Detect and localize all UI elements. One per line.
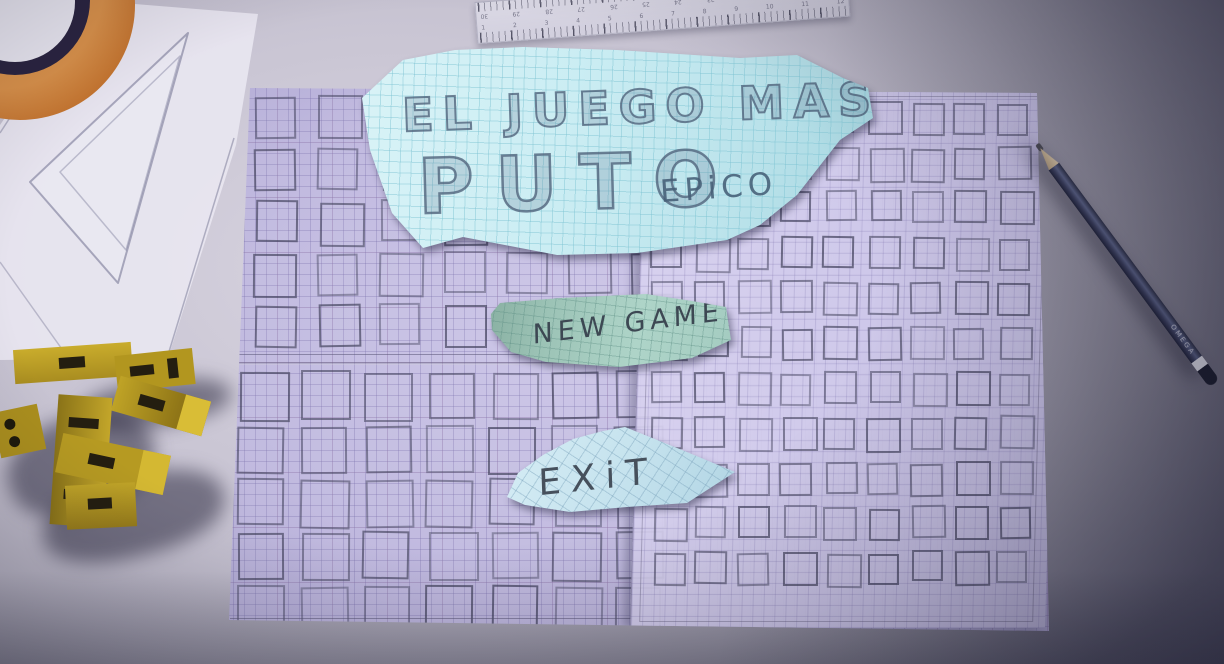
- ruler-number: 1: [481, 24, 485, 31]
- hand-drawn-square: [870, 371, 901, 403]
- hand-drawn-square: [912, 190, 944, 222]
- hand-drawn-square: [909, 325, 944, 359]
- hand-drawn-square: [824, 370, 858, 403]
- hand-drawn-square: [910, 148, 945, 182]
- hand-drawn-square: [783, 417, 818, 451]
- toy-slot: [88, 497, 113, 509]
- new-game-label: NEW GAME: [532, 296, 723, 351]
- hand-drawn-square: [956, 238, 990, 272]
- hand-drawn-square: [823, 418, 855, 451]
- hand-drawn-square: [954, 148, 986, 180]
- toy-slot: [88, 453, 116, 469]
- hand-drawn-square: [910, 282, 941, 314]
- ruler-number: 12: [837, 0, 845, 6]
- hand-drawn-square: [738, 506, 770, 538]
- hand-drawn-square: [866, 462, 898, 494]
- hand-drawn-square: [741, 326, 772, 358]
- title-tagline: EPiCO: [659, 166, 778, 210]
- ruler-number: 25: [642, 0, 650, 8]
- hand-drawn-square: [955, 551, 991, 586]
- hand-drawn-square: [998, 374, 1030, 406]
- ruler-number: 28: [545, 7, 553, 15]
- hand-drawn-square: [782, 329, 813, 361]
- hand-drawn-square: [826, 553, 861, 587]
- exit-label: EXiT: [538, 451, 658, 505]
- exit-button[interactable]: EXiT: [502, 423, 740, 525]
- hand-drawn-square: [654, 553, 687, 586]
- hand-drawn-square: [997, 103, 1028, 135]
- hand-drawn-square: [869, 509, 900, 541]
- hand-drawn-square: [868, 327, 902, 361]
- title-line1: EL JUEGO MAS: [401, 72, 881, 143]
- exit-card-wrap: EXiT: [502, 423, 740, 525]
- hand-drawn-square: [954, 190, 988, 223]
- hand-drawn-square: [912, 550, 943, 581]
- hand-drawn-square: [910, 464, 943, 497]
- hand-drawn-square: [955, 461, 990, 496]
- ruler-number: 26: [609, 3, 617, 11]
- hand-drawn-square: [868, 282, 900, 314]
- ruler-number: 7: [671, 10, 675, 17]
- hand-drawn-square: [997, 282, 1031, 316]
- hand-drawn-square: [911, 417, 943, 449]
- toy-end-face: [176, 394, 211, 436]
- hand-drawn-square: [739, 418, 773, 452]
- ruler-number: 3: [544, 20, 548, 27]
- toy-slot: [130, 364, 155, 376]
- hand-drawn-square: [822, 282, 857, 317]
- toy-slot: [167, 358, 179, 379]
- hand-drawn-square: [694, 551, 727, 584]
- ruler-number: 10: [766, 3, 774, 11]
- hand-drawn-square: [737, 462, 770, 495]
- title-card-wrap: EL JUEGO MAS PUTO EPiCO: [360, 40, 880, 260]
- ruler-number: 11: [801, 1, 809, 9]
- title-card: EL JUEGO MAS PUTO EPiCO: [360, 40, 880, 260]
- hand-drawn-square: [999, 506, 1030, 538]
- wooden-puzzle-toy: [0, 336, 226, 561]
- ruler-number: 22: [739, 0, 747, 1]
- ruler-number: 4: [576, 17, 580, 24]
- hand-drawn-square: [999, 327, 1032, 360]
- hand-drawn-square: [826, 462, 858, 494]
- hand-drawn-square: [955, 505, 989, 539]
- hand-drawn-square: [780, 374, 811, 406]
- hand-drawn-square: [913, 237, 945, 270]
- hand-drawn-square: [954, 416, 987, 449]
- toy-slot: [59, 356, 86, 369]
- toy-slot: [68, 417, 99, 429]
- ruler-number: 5: [608, 15, 612, 22]
- hand-drawn-square: [823, 507, 857, 541]
- hand-drawn-square: [953, 327, 984, 359]
- ruler-number: 29: [513, 10, 521, 18]
- toy-hole: [8, 435, 21, 448]
- hand-drawn-square: [866, 418, 901, 453]
- toy-block: [65, 482, 137, 530]
- hand-drawn-square: [780, 280, 814, 314]
- hand-drawn-square: [694, 372, 725, 404]
- ruler-number: 27: [577, 5, 585, 13]
- hand-drawn-square: [913, 373, 948, 407]
- hand-drawn-square: [736, 553, 769, 586]
- hand-drawn-square: [913, 103, 946, 136]
- ruler-number: 23: [706, 0, 714, 3]
- ruler-number: 30: [480, 12, 488, 20]
- hand-drawn-square: [783, 552, 818, 586]
- hand-drawn-square: [999, 239, 1030, 271]
- hand-drawn-square: [999, 415, 1034, 450]
- ruler-number: 8: [702, 8, 706, 15]
- hand-drawn-square: [1000, 191, 1035, 226]
- hand-drawn-square: [998, 146, 1032, 180]
- toy-block: [0, 404, 46, 459]
- ruler-number: 2: [513, 22, 517, 29]
- ruler-number: 9: [734, 6, 738, 13]
- hand-drawn-square: [911, 505, 945, 539]
- new-game-card-wrap: NEW GAME: [486, 291, 738, 371]
- hand-drawn-square: [779, 463, 812, 496]
- toy-slot: [138, 394, 166, 412]
- ruler-number: 6: [639, 13, 643, 20]
- new-game-button[interactable]: NEW GAME: [486, 291, 738, 371]
- hand-drawn-square: [737, 280, 771, 314]
- ruler-number: 24: [674, 0, 682, 5]
- hand-drawn-square: [868, 554, 899, 585]
- hand-drawn-square: [953, 103, 985, 135]
- hand-drawn-square: [737, 371, 771, 405]
- toy-hole: [3, 418, 16, 431]
- hand-drawn-square: [651, 370, 683, 402]
- photo-paper-game-menu: 302928272625242322212019 123456789101112…: [0, 0, 1224, 664]
- hand-drawn-square: [784, 505, 817, 538]
- hand-drawn-square: [995, 551, 1026, 583]
- hand-drawn-square: [1000, 460, 1034, 494]
- hand-drawn-square: [955, 371, 990, 406]
- hand-drawn-square: [955, 281, 990, 315]
- hand-drawn-square: [823, 325, 858, 360]
